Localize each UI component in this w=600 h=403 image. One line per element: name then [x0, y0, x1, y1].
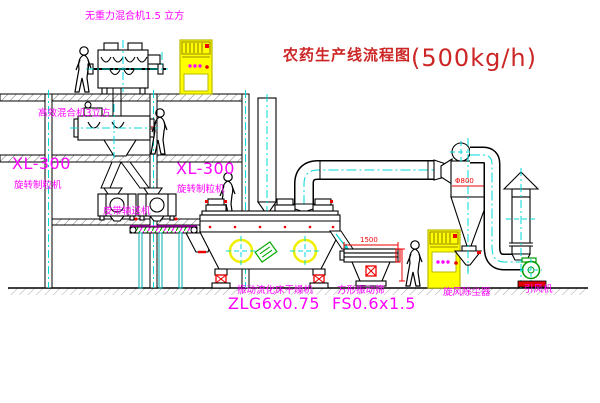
fluid-bed-dryer: [186, 199, 340, 288]
vibrating-sieve: [340, 242, 405, 286]
label-fan: 引风机: [524, 285, 553, 295]
diagram-title: 农药生产线流程图(500kg/h): [283, 44, 537, 72]
distribution-chute: [101, 162, 149, 188]
label-sieve-model: FS0.6x1.5: [332, 296, 416, 312]
label-granulator-right-model: XL-300: [176, 161, 235, 177]
title-capacity: (500kg/h): [411, 44, 537, 72]
induced-draft-fan: [518, 258, 546, 287]
title-text: 农药生产线流程图: [283, 46, 411, 64]
label-gravity-mixer: 无重力混合机1.5 立方: [85, 12, 184, 22]
dimension-cyclone-diameter-text: Φ800: [455, 178, 474, 185]
worker-figure-4: [406, 241, 422, 286]
label-granulator-left-model: XL-300: [12, 156, 71, 172]
label-granulator-left-name: 旋转制粒机: [14, 181, 62, 191]
label-dryer-model: ZLG6x0.75: [228, 296, 320, 312]
label-high-eff-mixer: 高效混合机3立方: [38, 109, 111, 119]
label-granulator-right-name: 旋转制粒机: [177, 185, 225, 195]
exhaust-duct: [280, 160, 452, 211]
dimension-sieve-length-text: 1500: [360, 237, 378, 244]
feed-duct: [258, 94, 276, 216]
control-cabinet-1: [180, 40, 212, 94]
control-cabinet-2: [428, 230, 460, 288]
flow-diagram-canvas: 农药生产线流程图(500kg/h) 无重力混合机1.5 立方 高效混合机3立方 …: [0, 0, 600, 403]
label-belt-conveyor: 皮带输送机: [103, 207, 151, 217]
label-cyclone: 旋风除尘器: [443, 288, 491, 298]
